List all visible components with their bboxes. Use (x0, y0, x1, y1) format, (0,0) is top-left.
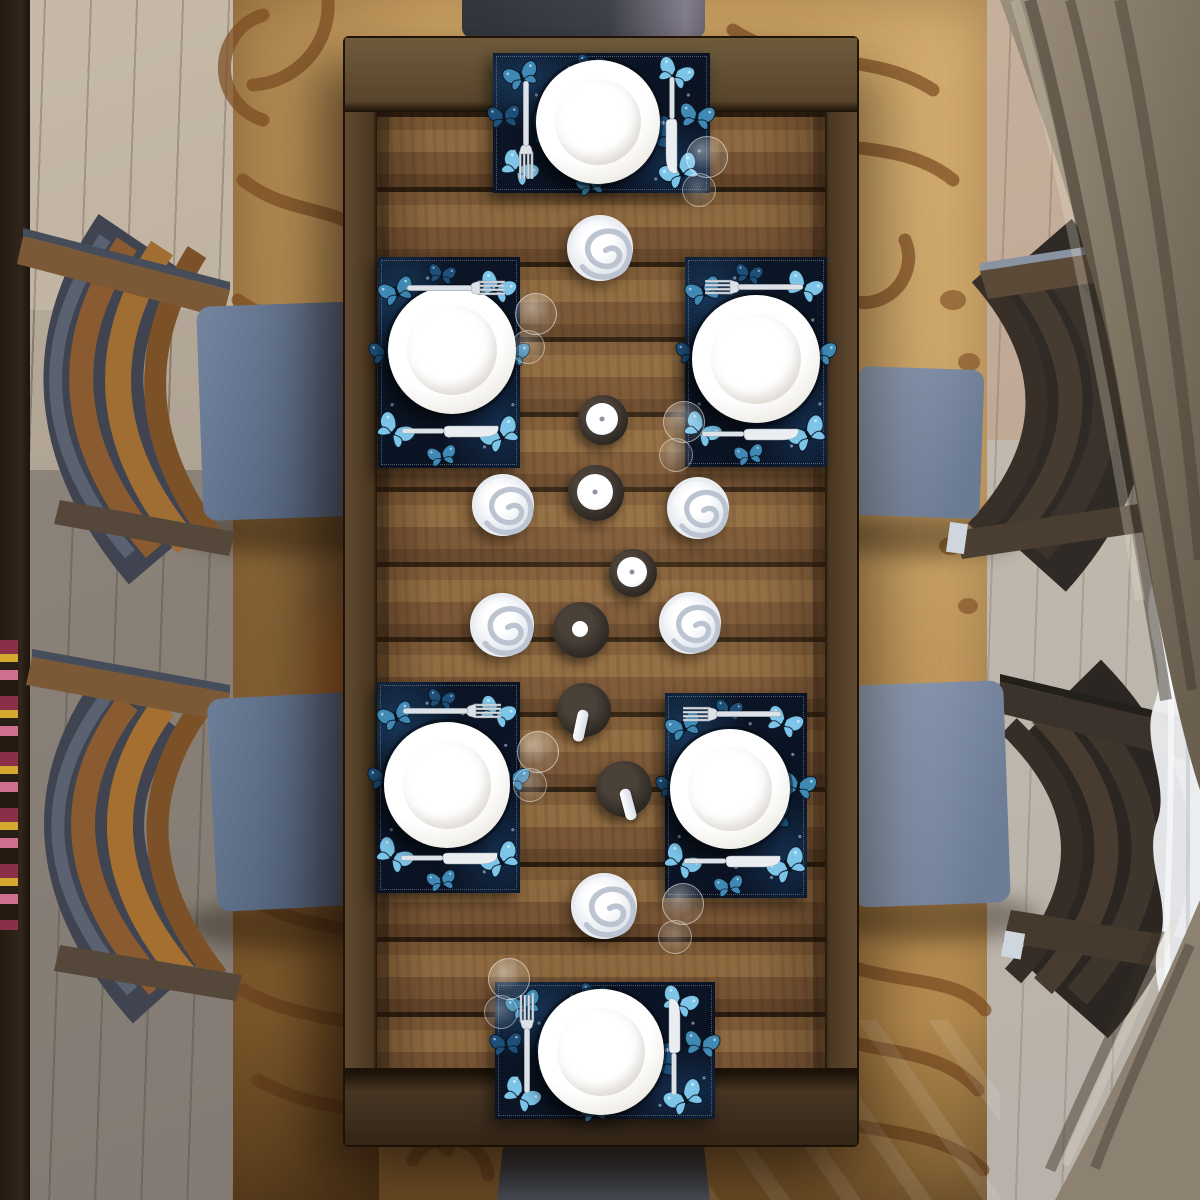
dinner-plate (384, 722, 510, 848)
knife-icon (667, 997, 681, 1097)
sparkle-dot (511, 403, 514, 406)
sparkle-dot (537, 1022, 540, 1025)
sparkle-dot (678, 835, 681, 838)
placemat-upper-left (378, 257, 520, 468)
glass-foot (658, 920, 692, 954)
plate-inner-well (711, 314, 801, 404)
sparkle-dot (770, 876, 773, 879)
sparkle-dot (691, 1022, 694, 1025)
sparkle-dot (658, 1104, 661, 1107)
spiral-icon (487, 489, 531, 532)
sparkle-dot (513, 149, 516, 152)
glass-foot (659, 438, 693, 472)
knife-icon (700, 427, 800, 441)
candlestick-holder (557, 683, 611, 737)
sparkle-dot (791, 753, 794, 756)
fork-icon (685, 706, 781, 722)
candle-wick (600, 417, 605, 422)
knife-icon (682, 854, 782, 868)
fork-icon (407, 280, 503, 296)
knife-icon (666, 77, 677, 173)
placemat-lower-left (377, 682, 520, 893)
wine-glass (511, 293, 559, 369)
swirl-candle (571, 873, 637, 939)
butterfly-icon (733, 443, 764, 466)
glass-foot (513, 768, 547, 802)
swirl-top (575, 877, 641, 943)
fork-icon (519, 81, 533, 179)
glass-foot (511, 330, 545, 364)
fork-icon (407, 281, 505, 295)
candle-stem (572, 709, 589, 743)
plate-inner-well (555, 79, 642, 166)
glass-bowl (686, 136, 728, 178)
pillar-candle-holder (568, 465, 624, 521)
glass-bowl (517, 731, 559, 773)
swirl-candle (567, 215, 633, 281)
glass-bowl (663, 401, 705, 443)
butterfly-icon (678, 102, 716, 130)
dinner-plate (692, 295, 820, 423)
sparkle-dot (749, 722, 752, 725)
candle-wick (593, 490, 598, 495)
knife-icon (684, 856, 780, 867)
dinner-plate (388, 286, 516, 414)
knife-icon (702, 429, 798, 440)
fork-icon (705, 280, 803, 294)
glass-foot (682, 173, 716, 207)
placemat-lower-right (665, 693, 807, 898)
candle-wax-top (572, 621, 588, 637)
candlestick-holder (596, 761, 652, 817)
swirl-candle (667, 477, 729, 539)
fork-icon (683, 707, 781, 721)
swirl-top (671, 481, 733, 543)
fork-icon (518, 81, 534, 177)
butterfly-icon (713, 874, 744, 897)
butterfly-icon (426, 444, 457, 467)
pillar-candle-holder (578, 395, 628, 445)
candle-wax-top (577, 474, 613, 510)
sparkle-dot (702, 1076, 705, 1079)
swirl-top (474, 597, 538, 661)
sparkle-dot (687, 93, 690, 96)
spiral-icon (587, 889, 634, 935)
wine-glass (682, 136, 730, 212)
sparkle-dot (390, 828, 393, 831)
swirl-top (571, 219, 637, 285)
fork-icon (403, 703, 499, 719)
glass-bowl (662, 883, 704, 925)
pillar-candle-holder (609, 549, 657, 597)
knife-icon (399, 851, 499, 865)
wine-glass (658, 883, 706, 959)
spiral-icon (674, 607, 718, 650)
glass-bowl (515, 293, 557, 335)
candle-wax-top (586, 403, 618, 435)
dining-room-scene (0, 0, 1200, 1200)
spiral-icon (485, 609, 530, 653)
butterfly-icon (683, 1030, 721, 1058)
sparkle-dot (511, 828, 514, 831)
sparkle-dot (483, 870, 486, 873)
candle-wick (630, 570, 635, 575)
sparkle-dot (535, 93, 538, 96)
candle-stem (619, 788, 638, 822)
placemat-top (493, 53, 710, 193)
sparkle-dot (798, 835, 801, 838)
butterfly-icon (489, 1032, 522, 1055)
wine-glass (659, 401, 707, 477)
swirl-top (663, 596, 725, 658)
plate-inner-well (688, 747, 772, 831)
sparkle-dot (818, 402, 821, 405)
sparkle-dot (504, 744, 507, 747)
swirl-candle (472, 474, 534, 536)
knife-icon (400, 424, 500, 438)
fork-icon (707, 279, 803, 295)
swirl-candle (659, 592, 721, 654)
dinner-plate (670, 729, 790, 849)
swirl-top (476, 478, 538, 540)
spiral-icon (583, 231, 630, 277)
dinner-plate (536, 60, 660, 184)
butterfly-icon (487, 105, 520, 128)
spiral-icon (682, 492, 726, 535)
curtain-top-right (970, 0, 1200, 820)
sparkle-dot (654, 177, 657, 180)
fork-icon (403, 704, 501, 718)
sparkle-dot (483, 445, 486, 448)
glass-foot (484, 995, 518, 1029)
knife-icon (402, 426, 498, 437)
knife-icon (665, 75, 679, 175)
sparkle-dot (391, 403, 394, 406)
pillar-candle-holder (553, 602, 609, 658)
dinner-plate (538, 989, 664, 1115)
sparkle-dot (811, 318, 814, 321)
plate-inner-well (403, 741, 491, 829)
plate-inner-well (557, 1008, 645, 1096)
swirl-candle (470, 593, 534, 657)
sparkle-dot (790, 444, 793, 447)
butterfly-icon (426, 869, 457, 892)
plate-inner-well (407, 305, 497, 395)
candle-wax-top (617, 557, 647, 587)
wine-glass (513, 731, 561, 807)
wine-glass (484, 958, 532, 1034)
knife-icon (401, 853, 497, 864)
knife-icon (669, 999, 680, 1095)
glass-bowl (488, 958, 530, 1000)
curtain-bottom-right (1000, 900, 1200, 1200)
